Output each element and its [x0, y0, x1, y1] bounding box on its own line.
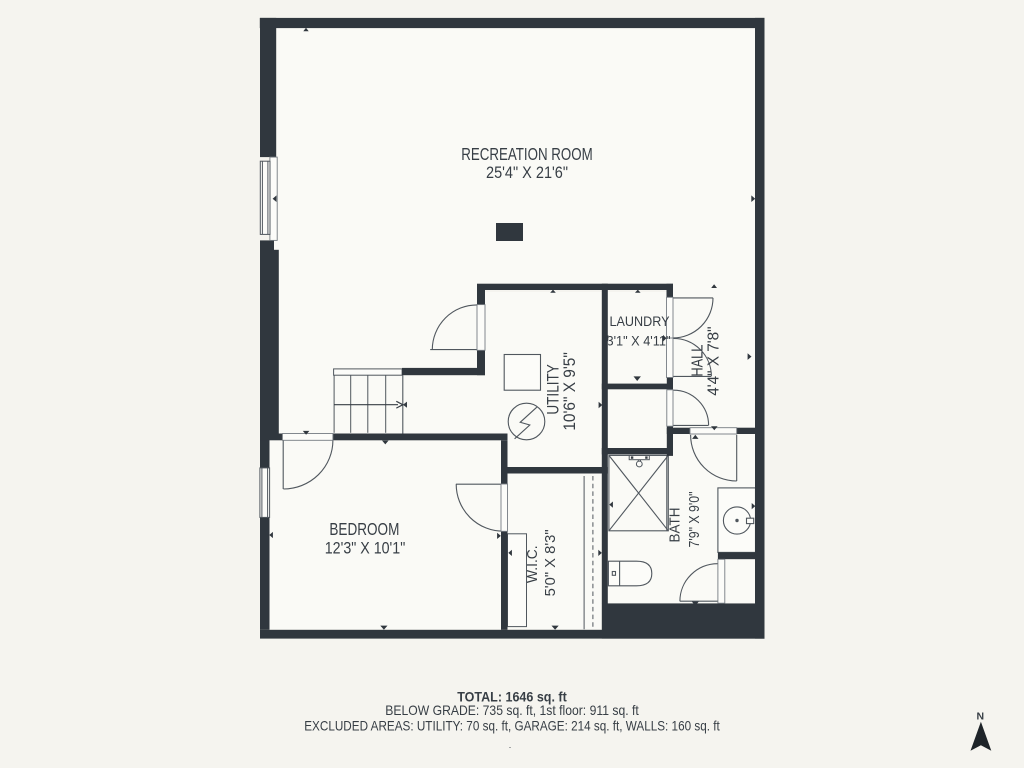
- svg-text:.: .: [509, 740, 512, 750]
- svg-text:7'9" X 9'0": 7'9" X 9'0": [687, 492, 703, 548]
- svg-text:3'1" X 4'11": 3'1" X 4'11": [607, 334, 671, 349]
- svg-text:12'3" X 10'1": 12'3" X 10'1": [325, 540, 406, 558]
- svg-text:25'4" X 21'6": 25'4" X 21'6": [486, 164, 568, 182]
- svg-text:N: N: [977, 710, 985, 722]
- svg-text:LAUNDRY: LAUNDRY: [610, 314, 670, 329]
- svg-text:4'4" X 7'8": 4'4" X 7'8": [706, 326, 723, 395]
- svg-text:BELOW GRADE: 735 sq. ft, 1st f: BELOW GRADE: 735 sq. ft, 1st floor: 911 …: [385, 703, 639, 718]
- svg-text:BATH: BATH: [667, 508, 683, 543]
- svg-text:BEDROOM: BEDROOM: [329, 519, 399, 539]
- svg-text:W.I.C.: W.I.C.: [524, 545, 541, 583]
- svg-text:10'6" X 9'5": 10'6" X 9'5": [560, 352, 579, 431]
- svg-text:RECREATION ROOM: RECREATION ROOM: [461, 144, 593, 164]
- svg-text:HALL: HALL: [690, 344, 707, 376]
- svg-text:5'0" X 8'3": 5'0" X 8'3": [542, 529, 559, 596]
- svg-text:EXCLUDED AREAS: UTILITY: 70 sq: EXCLUDED AREAS: UTILITY: 70 sq. ft, GARA…: [304, 719, 720, 734]
